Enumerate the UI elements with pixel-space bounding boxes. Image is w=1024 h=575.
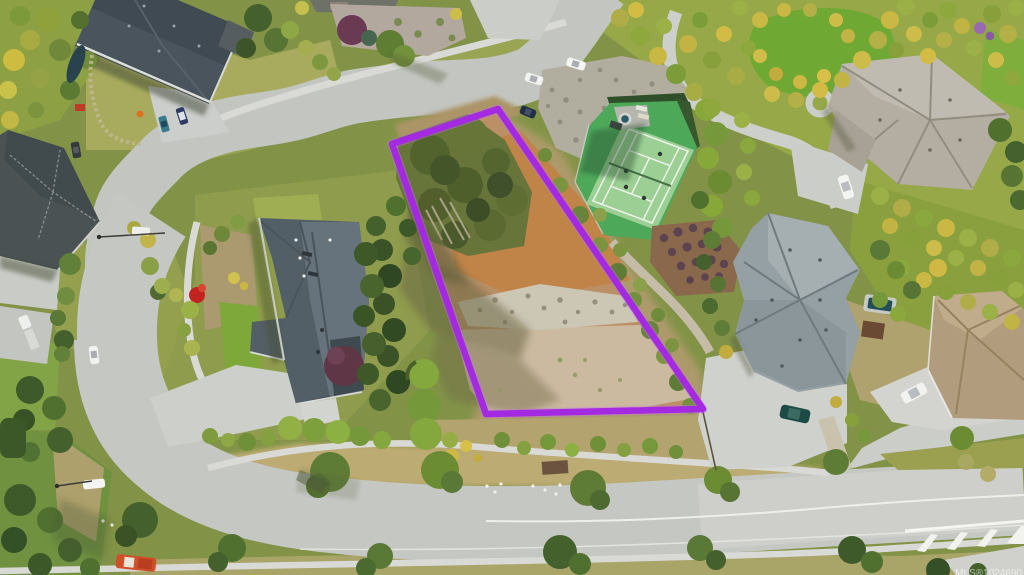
- svg-text:MLS®1024690: MLS®1024690: [955, 568, 1022, 575]
